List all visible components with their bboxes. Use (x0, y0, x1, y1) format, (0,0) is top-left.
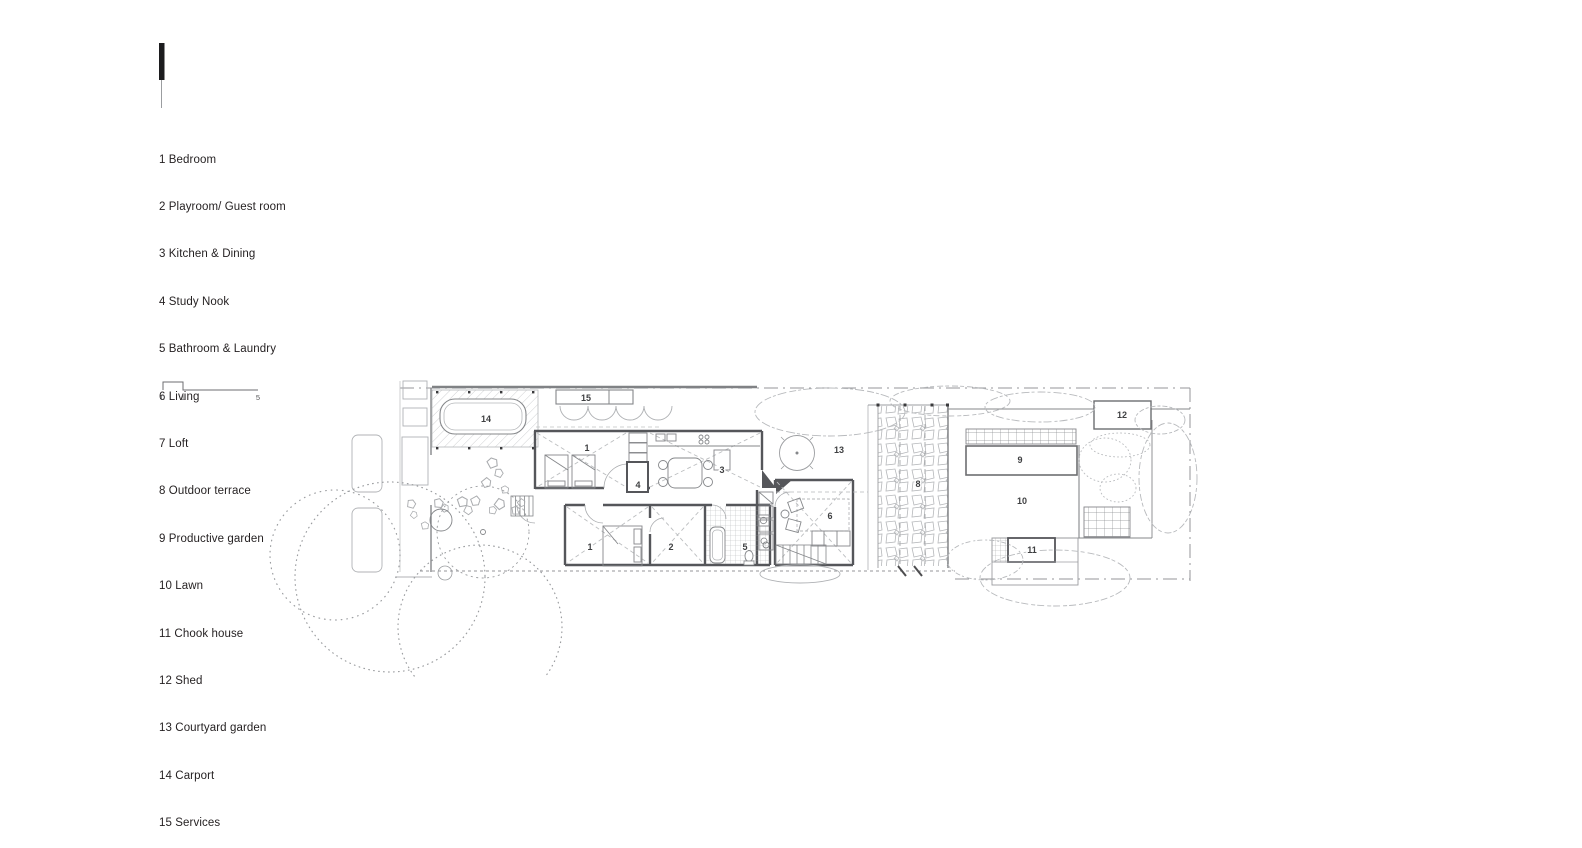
outdoor-terrace (868, 404, 949, 577)
parked-car (352, 508, 382, 572)
shrub (430, 509, 452, 531)
label-lawn: 10 (1017, 496, 1027, 506)
tree-canopy-dotted (295, 482, 485, 672)
sofa (812, 531, 850, 546)
label-outdoor-terrace: 8 (915, 479, 920, 489)
paved-strip (966, 429, 1076, 444)
services-zone (536, 390, 672, 427)
label-study-nook: 4 (635, 480, 640, 490)
legend-item: 14 Carport (159, 769, 286, 785)
parked-car (352, 435, 382, 492)
toilet (745, 551, 753, 562)
loft-stairs (776, 545, 826, 564)
washing-machine (758, 515, 769, 526)
bedroom-bottom-furniture (603, 526, 642, 566)
backyard-structure (948, 409, 1190, 538)
floor-plan-drawing: 0 1 5 (0, 0, 1582, 677)
scale-tick-0: 0 (161, 393, 165, 402)
label-courtyard-garden: 13 (834, 445, 844, 455)
label-shed: 12 (1117, 410, 1127, 420)
label-services: 15 (581, 393, 591, 403)
label-chook-house: 11 (1027, 545, 1037, 555)
dining-table (668, 458, 702, 488)
legend-item: 15 Services (159, 816, 286, 832)
label-carport: 14 (481, 414, 491, 424)
scale-tick-1: 1 (181, 393, 185, 402)
label-living: 6 (827, 511, 832, 521)
legend-item: 13 Courtyard garden (159, 721, 286, 737)
label-playroom: 2 (668, 542, 673, 552)
tree-canopy-dotted (398, 545, 562, 677)
north-marker (159, 43, 165, 108)
paved-patch (1084, 507, 1130, 537)
garden-bed-oval (760, 565, 840, 583)
scale-tick-5: 5 (256, 393, 260, 402)
label-bedroom-top: 1 (584, 443, 589, 453)
bathroom-laundry (706, 506, 769, 565)
scale-bar: 0 1 5 (161, 382, 260, 402)
label-bathroom-laundry: 5 (742, 542, 747, 552)
armchair (786, 519, 801, 533)
label-productive-garden: 9 (1017, 455, 1022, 465)
stepping-stones (405, 458, 526, 530)
label-bedroom-bottom: 1 (587, 542, 592, 552)
armchair (788, 498, 804, 513)
living-furniture (781, 498, 850, 546)
street-side (352, 381, 432, 577)
label-kitchen-dining: 3 (719, 465, 724, 475)
